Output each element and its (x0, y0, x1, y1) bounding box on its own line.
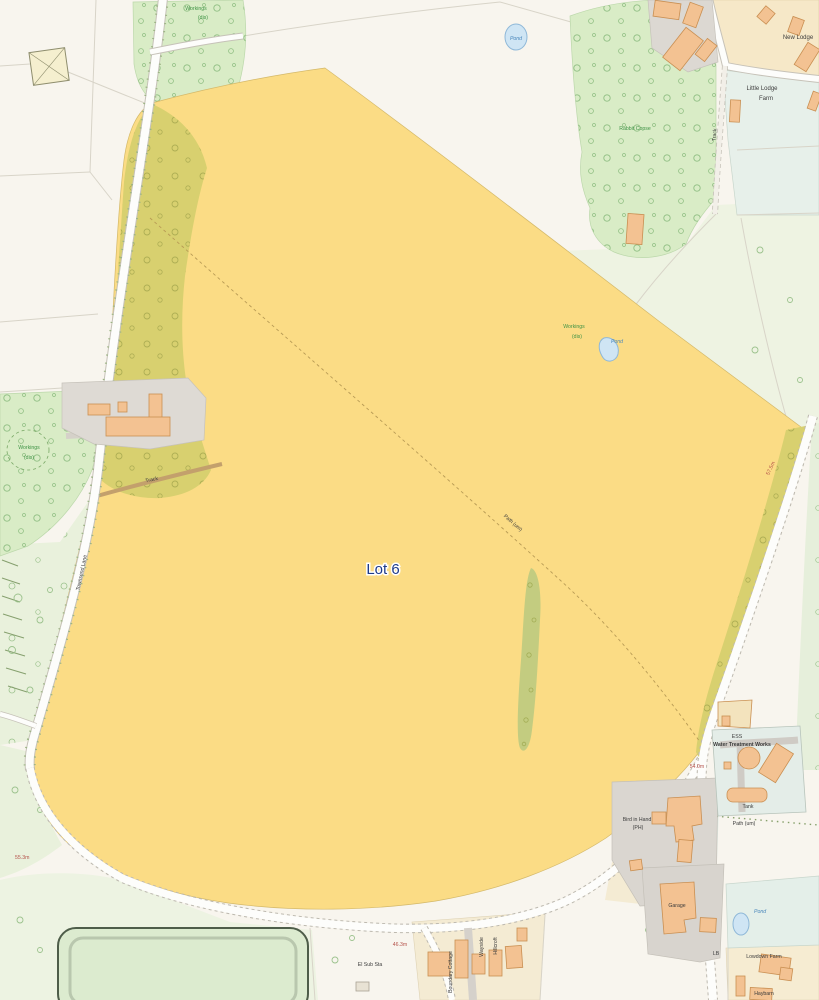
label-new-lodge: New Lodge (783, 35, 814, 41)
label-track-right: Track (711, 128, 718, 142)
label-lb: LB (713, 951, 720, 957)
building (505, 945, 522, 968)
label-little-lodge: Little Lodge (746, 86, 778, 92)
building (677, 839, 693, 862)
label-boundary-cottage: Boundary Cottage (448, 951, 454, 993)
substation (356, 982, 369, 991)
building (736, 976, 745, 996)
label-workings-top: Workings (185, 6, 207, 12)
wtw-tank (727, 788, 767, 802)
map-canvas: Workings (dis) Workings (dis) Workings (… (0, 0, 819, 1000)
label-tank: Tank (743, 804, 754, 810)
building (428, 952, 450, 976)
building (729, 100, 740, 122)
lot6-label: Lot 6 (366, 561, 399, 578)
label-pond-mid: Pond (611, 339, 624, 345)
building (106, 417, 170, 436)
glasshouse (29, 48, 69, 86)
label-haybarn: Haybarn (754, 991, 774, 997)
label-wtw: Water Treatment Works (713, 742, 771, 748)
label-workings-top-dis: (dis) (198, 15, 208, 21)
label-workings-mid-dis: (dis) (572, 334, 582, 340)
building (626, 213, 644, 244)
building (455, 940, 468, 978)
label-little-lodge-farm: Farm (759, 96, 773, 102)
label-bird-in-hand: Bird in Hand (623, 817, 652, 823)
label-lowdown-farm: Lowdown Farm (746, 954, 781, 960)
building (88, 404, 110, 415)
land-plan-map: Workings (dis) Workings (dis) Workings (… (0, 0, 819, 1000)
label-path-um-2: Path (um) (733, 821, 756, 827)
label-bird-in-hand-ph: (PH) (633, 825, 644, 831)
label-workings-left: Workings (18, 445, 40, 451)
building (779, 967, 793, 981)
label-height-55-3: 55.3m (15, 855, 29, 861)
wtw-round-tank (738, 747, 760, 769)
label-workings-mid: Workings (563, 324, 585, 330)
label-wayside: Wayside (479, 937, 485, 957)
building (700, 918, 717, 933)
label-rabbit-copse: Rabbit Copse (619, 126, 651, 132)
building (517, 928, 527, 941)
label-garage: Garage (668, 903, 685, 909)
label-pond-top: Pond (510, 36, 523, 42)
building (118, 402, 127, 412)
label-pond-bottom: Pond (754, 909, 767, 915)
sports-field (58, 928, 308, 1000)
building (724, 762, 731, 769)
label-workings-left-dis: (dis) (24, 455, 34, 461)
label-el-sub-sta: El Sub Sta (358, 962, 383, 968)
label-ess: ESS (732, 734, 743, 740)
left-farm-yard (62, 378, 206, 449)
building (652, 812, 666, 824)
building (629, 859, 642, 871)
building (722, 716, 730, 726)
label-height-46-3: 46.3m (393, 942, 407, 948)
building (653, 0, 681, 19)
label-hillcroft: Hillcroft (493, 937, 499, 955)
pond-bottom (733, 913, 749, 935)
label-height-54-0: 54.0m (690, 764, 704, 770)
